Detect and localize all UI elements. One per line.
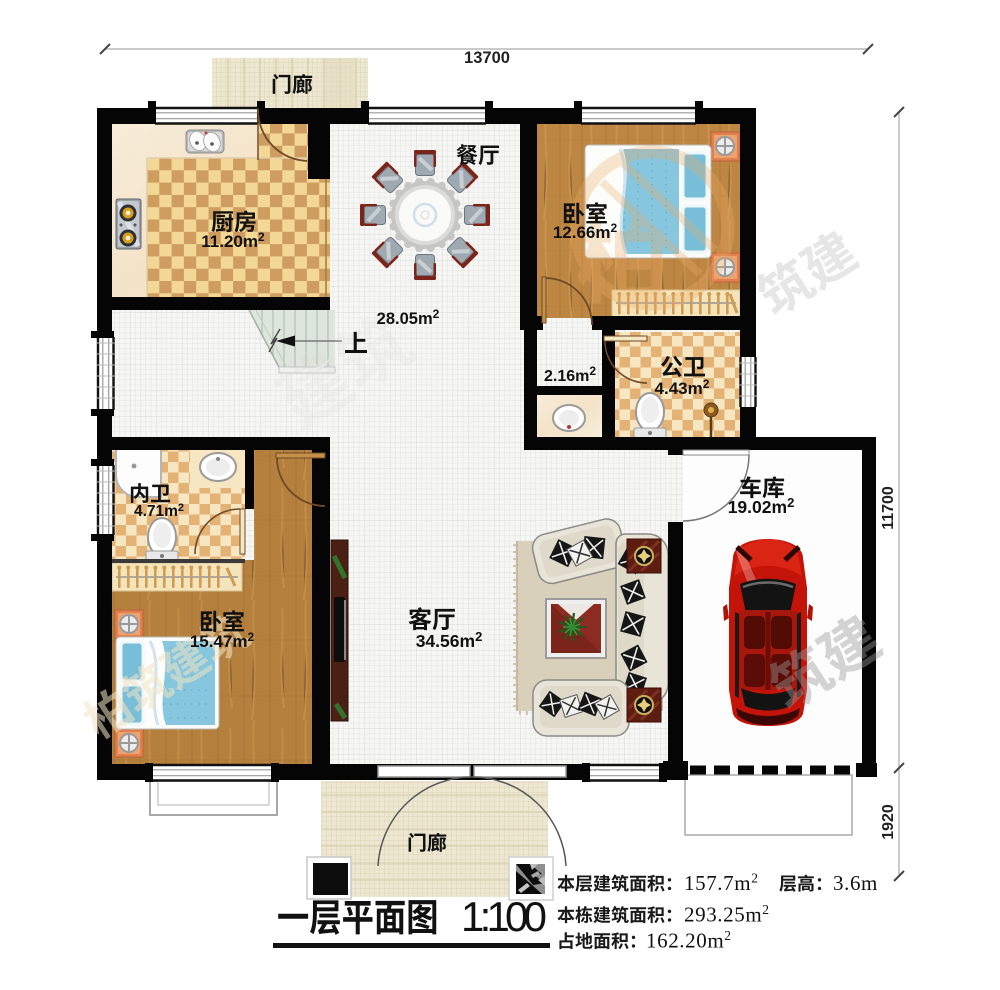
svg-text:1:100: 1:100 (461, 893, 547, 940)
svg-text:4.71m2: 4.71m2 (134, 502, 184, 520)
svg-text:11700: 11700 (880, 486, 897, 530)
svg-text:19.02m2: 19.02m2 (728, 495, 795, 517)
svg-text:13700: 13700 (464, 49, 510, 67)
svg-text:34.56m2: 34.56m2 (416, 629, 483, 651)
svg-text:1920: 1920 (880, 804, 897, 840)
svg-text:2.16m2: 2.16m2 (544, 364, 596, 385)
svg-text:11.20m2: 11.20m2 (201, 230, 265, 251)
svg-text:162.20m2: 162.20m2 (646, 928, 731, 953)
svg-text:4.43m2: 4.43m2 (655, 377, 710, 398)
svg-text:12.66m2: 12.66m2 (553, 221, 618, 242)
svg-text:157.7m2: 157.7m2 (684, 871, 758, 896)
svg-text:15.47m2: 15.47m2 (190, 630, 255, 651)
svg-text:293.25m2: 293.25m2 (684, 902, 769, 927)
svg-text:3.6m: 3.6m (833, 871, 878, 895)
svg-text:28.05m2: 28.05m2 (377, 307, 440, 328)
